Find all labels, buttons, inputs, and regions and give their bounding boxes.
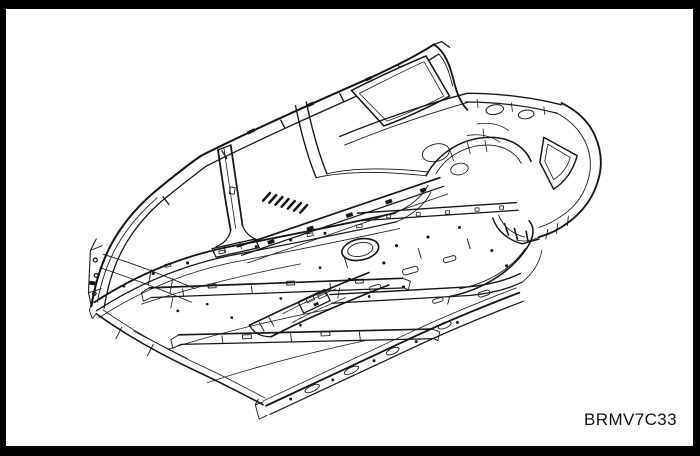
b-pillar [212,145,259,257]
rear-floor [330,203,542,304]
service-manual-figure: BRMV7C33 [0,0,700,456]
seatback-hatching [263,193,307,213]
quarter-window-opening [351,56,449,126]
cross-members [141,278,439,348]
rear-wheel-houses [296,102,533,304]
figure-code-label: BRMV7C33 [584,410,677,430]
vehicle-body-structure-illustration [6,9,693,446]
